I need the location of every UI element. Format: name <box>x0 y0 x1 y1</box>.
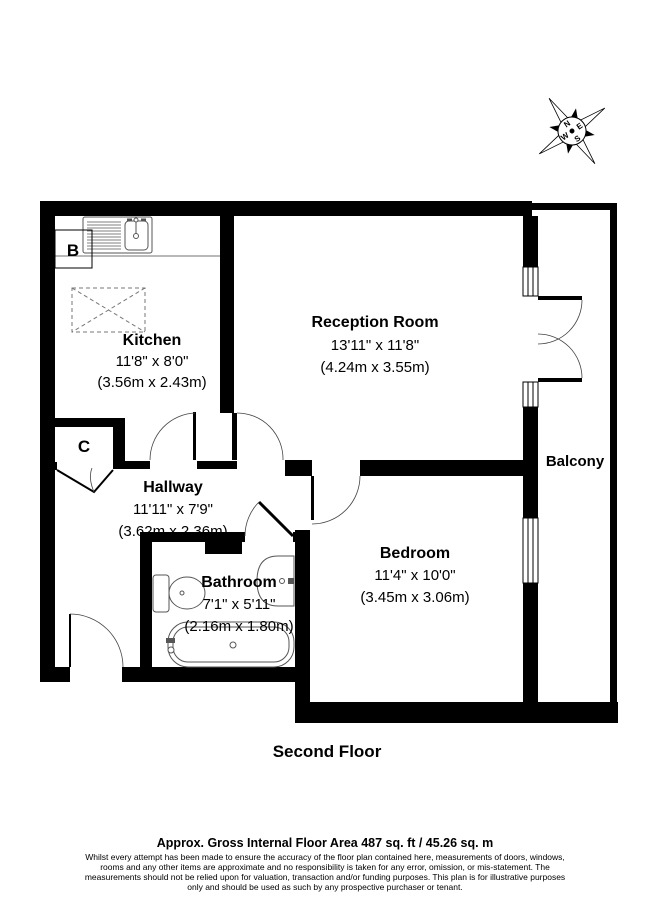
kitchen-metric: (3.56m x 2.43m) <box>97 374 206 391</box>
kitchen-name: Kitchen <box>123 332 182 349</box>
reception-metric: (4.24m x 3.55m) <box>320 359 429 376</box>
reception-window-upper <box>523 267 538 296</box>
bathroom-metric: (2.16m x 1.80m) <box>184 618 293 635</box>
bedroom-door <box>311 476 360 524</box>
hallway-label: Hallway 11'11" x 7'9" (3.62m x 2.36m) <box>118 479 227 540</box>
captions: Second Floor Approx. Gross Internal Floo… <box>85 742 565 892</box>
floor-plan-drawing: N E S W Kitchen 11'8" x 8'0" (3.56m x 2.… <box>0 0 650 919</box>
bathroom-door <box>245 502 293 536</box>
boiler-label: B <box>67 241 79 260</box>
reception-label: Reception Room 13'11" x 11'8" (4.24m x 3… <box>311 314 438 376</box>
disclaimer-line-2: rooms and any other items are approximat… <box>100 862 550 872</box>
kitchen-sink-unit <box>83 217 152 253</box>
bedroom-window <box>523 518 538 583</box>
kitchen-fixtures <box>55 217 220 332</box>
kitchen-door <box>150 412 196 460</box>
disclaimer-line-1: Whilst every attempt has been made to en… <box>85 852 565 862</box>
bathroom-dims: 7'1" x 5'11" <box>203 596 276 613</box>
entrance-door <box>70 614 123 667</box>
doors-layer <box>57 296 582 667</box>
disclaimer-line-3: measurements should not be relied upon f… <box>85 872 565 882</box>
balcony-french-doors <box>538 296 582 382</box>
reception-dims: 13'11" x 11'8" <box>331 337 419 354</box>
cupboard-label: C <box>78 437 90 456</box>
compass-rose-icon: N E S W <box>516 75 627 186</box>
hallway-dims: 11'11" x 7'9" <box>133 501 213 518</box>
bedroom-label: Bedroom 11'4" x 10'0" (3.45m x 3.06m) <box>360 545 469 606</box>
floor-area-line: Approx. Gross Internal Floor Area 487 sq… <box>157 836 493 850</box>
floor-title: Second Floor <box>273 742 382 761</box>
balcony-name: Balcony <box>546 453 605 470</box>
kitchen-label: Kitchen 11'8" x 8'0" (3.56m x 2.43m) <box>97 332 206 391</box>
hallway-name: Hallway <box>143 479 203 496</box>
kitchen-dashed-feature <box>72 288 145 332</box>
reception-window-lower <box>523 382 538 407</box>
bedroom-metric: (3.45m x 3.06m) <box>360 589 469 606</box>
toilet-icon <box>153 575 205 612</box>
walls-layer <box>40 201 618 723</box>
cupboard-bifold-door <box>57 468 113 492</box>
bedroom-name: Bedroom <box>380 545 450 562</box>
reception-door <box>232 413 283 460</box>
floor-plan-page: N E S W Kitchen 11'8" x 8'0" (3.56m x 2.… <box>0 0 650 919</box>
hallway-metric: (3.62m x 2.36m) <box>118 523 227 540</box>
bathroom-name: Bathroom <box>201 574 277 591</box>
reception-name: Reception Room <box>311 314 438 331</box>
bedroom-dims: 11'4" x 10'0" <box>374 567 455 584</box>
disclaimer-line-4: only and should be used as such by any p… <box>187 882 462 892</box>
kitchen-dims: 11'8" x 8'0" <box>116 353 189 370</box>
